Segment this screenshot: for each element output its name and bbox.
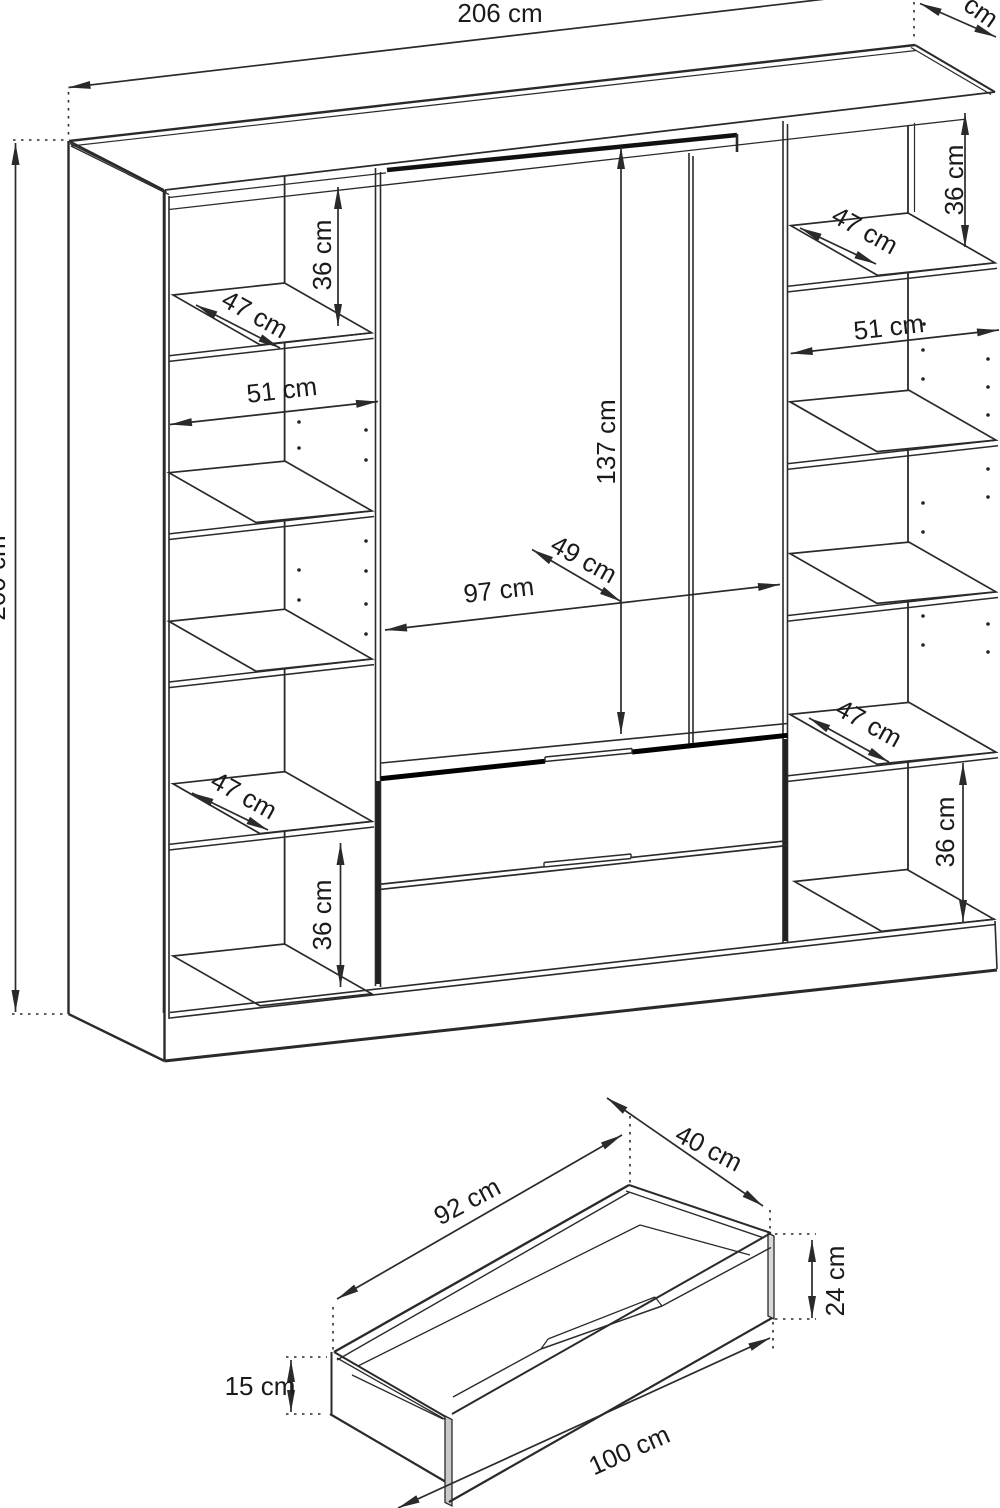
svg-text:200 cm: 200 cm xyxy=(0,535,11,620)
svg-text:36 cm: 36 cm xyxy=(939,145,969,216)
svg-text:206 cm: 206 cm xyxy=(457,0,542,28)
svg-text:36 cm: 36 cm xyxy=(307,880,337,951)
svg-text:36 cm: 36 cm xyxy=(307,220,337,291)
svg-text:36 cm: 36 cm xyxy=(930,797,960,868)
svg-text:24 cm: 24 cm xyxy=(820,1246,850,1317)
svg-text:15 cm: 15 cm xyxy=(225,1371,296,1401)
svg-text:137 cm: 137 cm xyxy=(591,399,621,484)
